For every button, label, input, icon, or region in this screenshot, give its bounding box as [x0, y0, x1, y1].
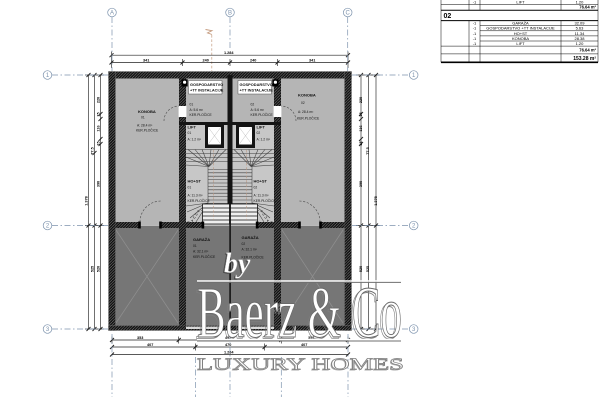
svg-text:KER.PLOČICE: KER.PLOČICE — [251, 112, 274, 117]
svg-text:KER.PLOČICE: KER.PLOČICE — [193, 254, 216, 259]
svg-text:02: 02 — [242, 242, 246, 246]
svg-text:01: 01 — [190, 103, 194, 107]
svg-text:390: 390 — [97, 181, 101, 187]
svg-text:76.64 m²: 76.64 m² — [579, 5, 596, 10]
svg-text:240: 240 — [250, 58, 256, 62]
svg-text:407: 407 — [147, 343, 153, 347]
svg-text:77.5: 77.5 — [366, 147, 370, 154]
svg-text:01: 01 — [188, 131, 192, 135]
svg-text:LIFT: LIFT — [516, 0, 525, 5]
svg-text:KER.PLOČICE: KER.PLOČICE — [188, 198, 211, 203]
svg-text:02: 02 — [444, 13, 452, 20]
svg-text:1.378: 1.378 — [374, 196, 378, 206]
svg-text:KONOBA: KONOBA — [138, 109, 156, 114]
svg-text:A: 1.2 m²: A: 1.2 m² — [257, 138, 271, 142]
svg-text:A: 1.2 m²: A: 1.2 m² — [188, 138, 202, 142]
svg-text:02: 02 — [301, 101, 305, 105]
svg-text:B: B — [228, 11, 232, 17]
svg-text:01: 01 — [188, 186, 192, 190]
svg-text:A: 28.4 m²: A: 28.4 m² — [137, 123, 153, 127]
svg-text:A: 5.6 m²: A: 5.6 m² — [251, 108, 265, 112]
svg-text:+TT INSTALACIJE: +TT INSTALACIJE — [190, 88, 224, 93]
svg-text:353: 353 — [137, 336, 143, 340]
svg-text:A: A — [110, 11, 114, 17]
svg-text:341: 341 — [143, 58, 149, 62]
svg-text:76.64 m²: 76.64 m² — [579, 48, 596, 53]
svg-text:LIFT: LIFT — [188, 125, 197, 130]
svg-text:HO+ST: HO+ST — [254, 179, 268, 184]
svg-text:1.378: 1.378 — [85, 196, 89, 206]
svg-text:A: 5.6 m²: A: 5.6 m² — [190, 108, 204, 112]
svg-text:1.284: 1.284 — [224, 51, 234, 55]
svg-text:LIFT: LIFT — [257, 125, 266, 130]
svg-text:KER.PLOČICE: KER.PLOČICE — [254, 198, 277, 203]
svg-text:520: 520 — [97, 266, 101, 272]
svg-text:A: 28.4 m²: A: 28.4 m² — [298, 110, 314, 114]
svg-text:02: 02 — [257, 131, 261, 135]
svg-text:77.5: 77.5 — [91, 147, 95, 154]
svg-text:GARAŽA: GARAŽA — [193, 237, 210, 242]
svg-text:GOSPODARSTVO: GOSPODARSTVO — [240, 82, 273, 87]
svg-text:HO+ST: HO+ST — [188, 179, 202, 184]
svg-text:KER.PLOČICE: KER.PLOČICE — [297, 116, 320, 121]
svg-text:GARAŽA: GARAŽA — [242, 235, 259, 240]
svg-text:LIFT: LIFT — [516, 41, 525, 46]
svg-text:220: 220 — [359, 97, 363, 103]
svg-text:LUXURY HOMES: LUXURY HOMES — [197, 355, 404, 374]
svg-text:02: 02 — [254, 186, 258, 190]
svg-text:A: 11.3 m²: A: 11.3 m² — [254, 194, 270, 198]
svg-text:KER.PLOČICE: KER.PLOČICE — [136, 128, 159, 133]
svg-text:1.20: 1.20 — [576, 41, 585, 46]
svg-text:341: 341 — [309, 58, 315, 62]
svg-text:116: 116 — [97, 125, 101, 131]
svg-text:390: 390 — [359, 181, 363, 187]
svg-text:KER.PLOČICE: KER.PLOČICE — [190, 112, 213, 117]
svg-text:15: 15 — [97, 112, 101, 116]
svg-text:02: 02 — [251, 103, 255, 107]
svg-text:240: 240 — [203, 58, 209, 62]
svg-text:01: 01 — [193, 244, 197, 248]
svg-text:15: 15 — [97, 141, 101, 145]
svg-text:KONOBA: KONOBA — [298, 93, 316, 98]
svg-text:+TT INSTALACIJE: +TT INSTALACIJE — [240, 88, 274, 93]
svg-text:01: 01 — [141, 116, 145, 120]
svg-text:220: 220 — [97, 97, 101, 103]
svg-text:116: 116 — [359, 125, 363, 131]
svg-text:15: 15 — [359, 112, 363, 116]
svg-text:153.28 m²: 153.28 m² — [573, 56, 596, 62]
svg-text:A: 11.3 m²: A: 11.3 m² — [188, 194, 204, 198]
svg-text:15: 15 — [359, 141, 363, 145]
svg-text:A: 32.1 m²: A: 32.1 m² — [193, 250, 209, 254]
svg-text:525: 525 — [91, 266, 95, 272]
svg-text:GOSPODARSTVO: GOSPODARSTVO — [190, 82, 223, 87]
svg-text:C: C — [346, 11, 351, 17]
